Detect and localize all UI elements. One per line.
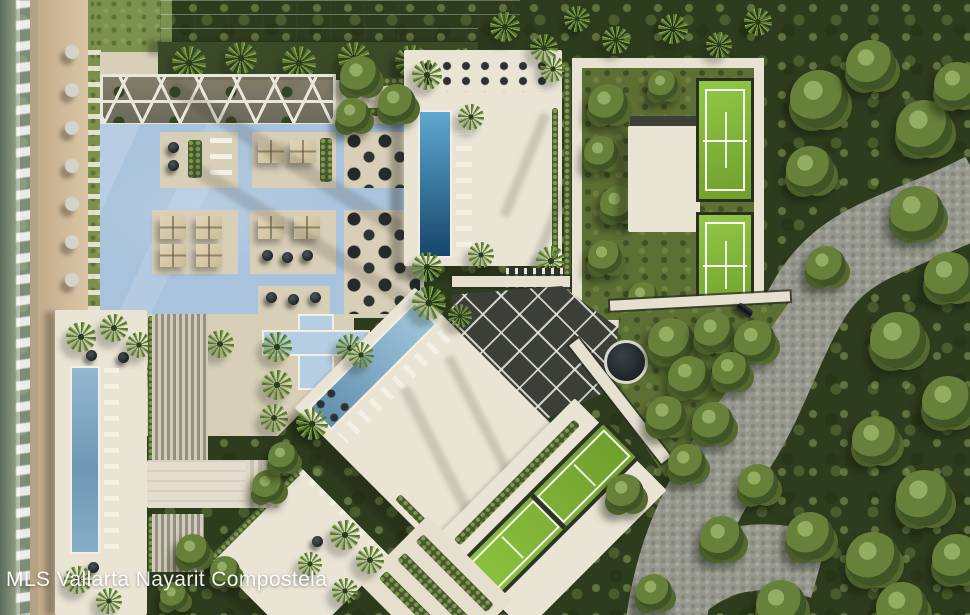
walkway [452,276,570,287]
palm-tree [296,408,328,440]
beachfront-lap-pool [70,366,100,554]
tennis-court-1 [696,78,754,202]
canopy-tree [896,100,952,156]
canopy-tree [646,396,686,436]
canopy-tree [806,246,846,286]
palm-tree [348,342,374,368]
canopy-tree [786,146,834,194]
palm-tree [530,34,558,62]
palm-tree [225,42,257,74]
palm-tree [100,314,128,342]
canopy-tree [786,512,834,560]
pool-umbrella [266,292,277,303]
pool-umbrella [288,294,299,305]
canopy-tree [694,312,734,352]
terrace-umbrella [312,536,323,547]
cabana [196,216,222,239]
canopy-tree [636,574,672,610]
palm-tree [356,546,384,574]
pool-umbrella [302,250,313,261]
rooftop-lap-pool [418,110,452,258]
canopy-tree [668,444,706,482]
palm-tree [66,322,96,352]
court-center-line [725,112,727,169]
canopy-tree [252,470,284,502]
palm-tree [262,370,292,400]
main-building-roof [160,0,478,42]
canopy-tree [790,70,848,128]
watermark-text: MLS Vallarta Nayarit Compostela [6,568,327,592]
roof-umbrella [86,350,97,361]
canopy-tree [852,416,900,464]
canopy-tree [668,356,710,398]
canopy-tree [700,516,744,560]
pergola-beam [103,100,333,103]
canopy-tree [846,532,900,586]
canopy-tree [924,252,970,302]
palm-tree [744,8,772,36]
palm-tree [468,242,494,268]
palm-tree [564,6,590,32]
resort-aerial-rendering: MLS Vallarta Nayarit Compostela [0,0,970,615]
palm-tree [412,60,442,90]
canopy-tree [336,98,370,132]
palm-tree [706,32,732,58]
reflecting-pond [604,340,648,384]
palm-tree [490,12,520,42]
pool-umbrella [168,160,179,171]
canopy-tree [588,240,622,274]
canopy-tree [692,402,734,444]
canopy-tree [176,534,210,568]
canopy-tree [846,40,896,90]
canopy-tree [378,84,416,122]
canopy-tree [268,442,298,472]
pool-umbrella [262,250,273,261]
canopy-tree [712,352,750,390]
clubhouse-roof [628,126,700,232]
palm-tree [330,520,360,550]
pool-umbrella [282,252,293,263]
cabana [196,244,222,267]
palm-tree [458,104,484,130]
pool-umbrella [168,142,179,153]
palm-tree [262,332,292,362]
palm-tree [260,404,288,432]
canopy-tree [890,186,944,240]
palm-tree [412,252,442,282]
pool-umbrella [310,292,321,303]
palm-tree [412,286,446,320]
cabana [160,244,186,267]
roof-hedge [552,108,558,260]
beach-umbrellas [62,42,89,354]
roof-umbrella [118,352,129,363]
louvered-roof-section [152,314,208,462]
pool-loungers [456,114,472,254]
court-center-line [725,241,727,289]
palm-tree [332,578,358,604]
cabana [160,216,186,239]
palm-tree [448,304,472,328]
canopy-tree [648,70,678,100]
canopy-tree [588,84,628,124]
canopy-tree [870,312,926,368]
palm-shadow [399,385,477,524]
canopy-tree [584,136,618,170]
canopy-tree [896,470,952,526]
palm-tree [658,14,688,44]
canopy-tree [738,464,778,504]
canopy-tree [922,376,970,428]
pool-loungers [104,368,119,552]
canopy-tree [606,474,644,512]
palm-tree [602,26,630,54]
canopy-tree [340,56,380,96]
palm-tree [206,330,234,358]
